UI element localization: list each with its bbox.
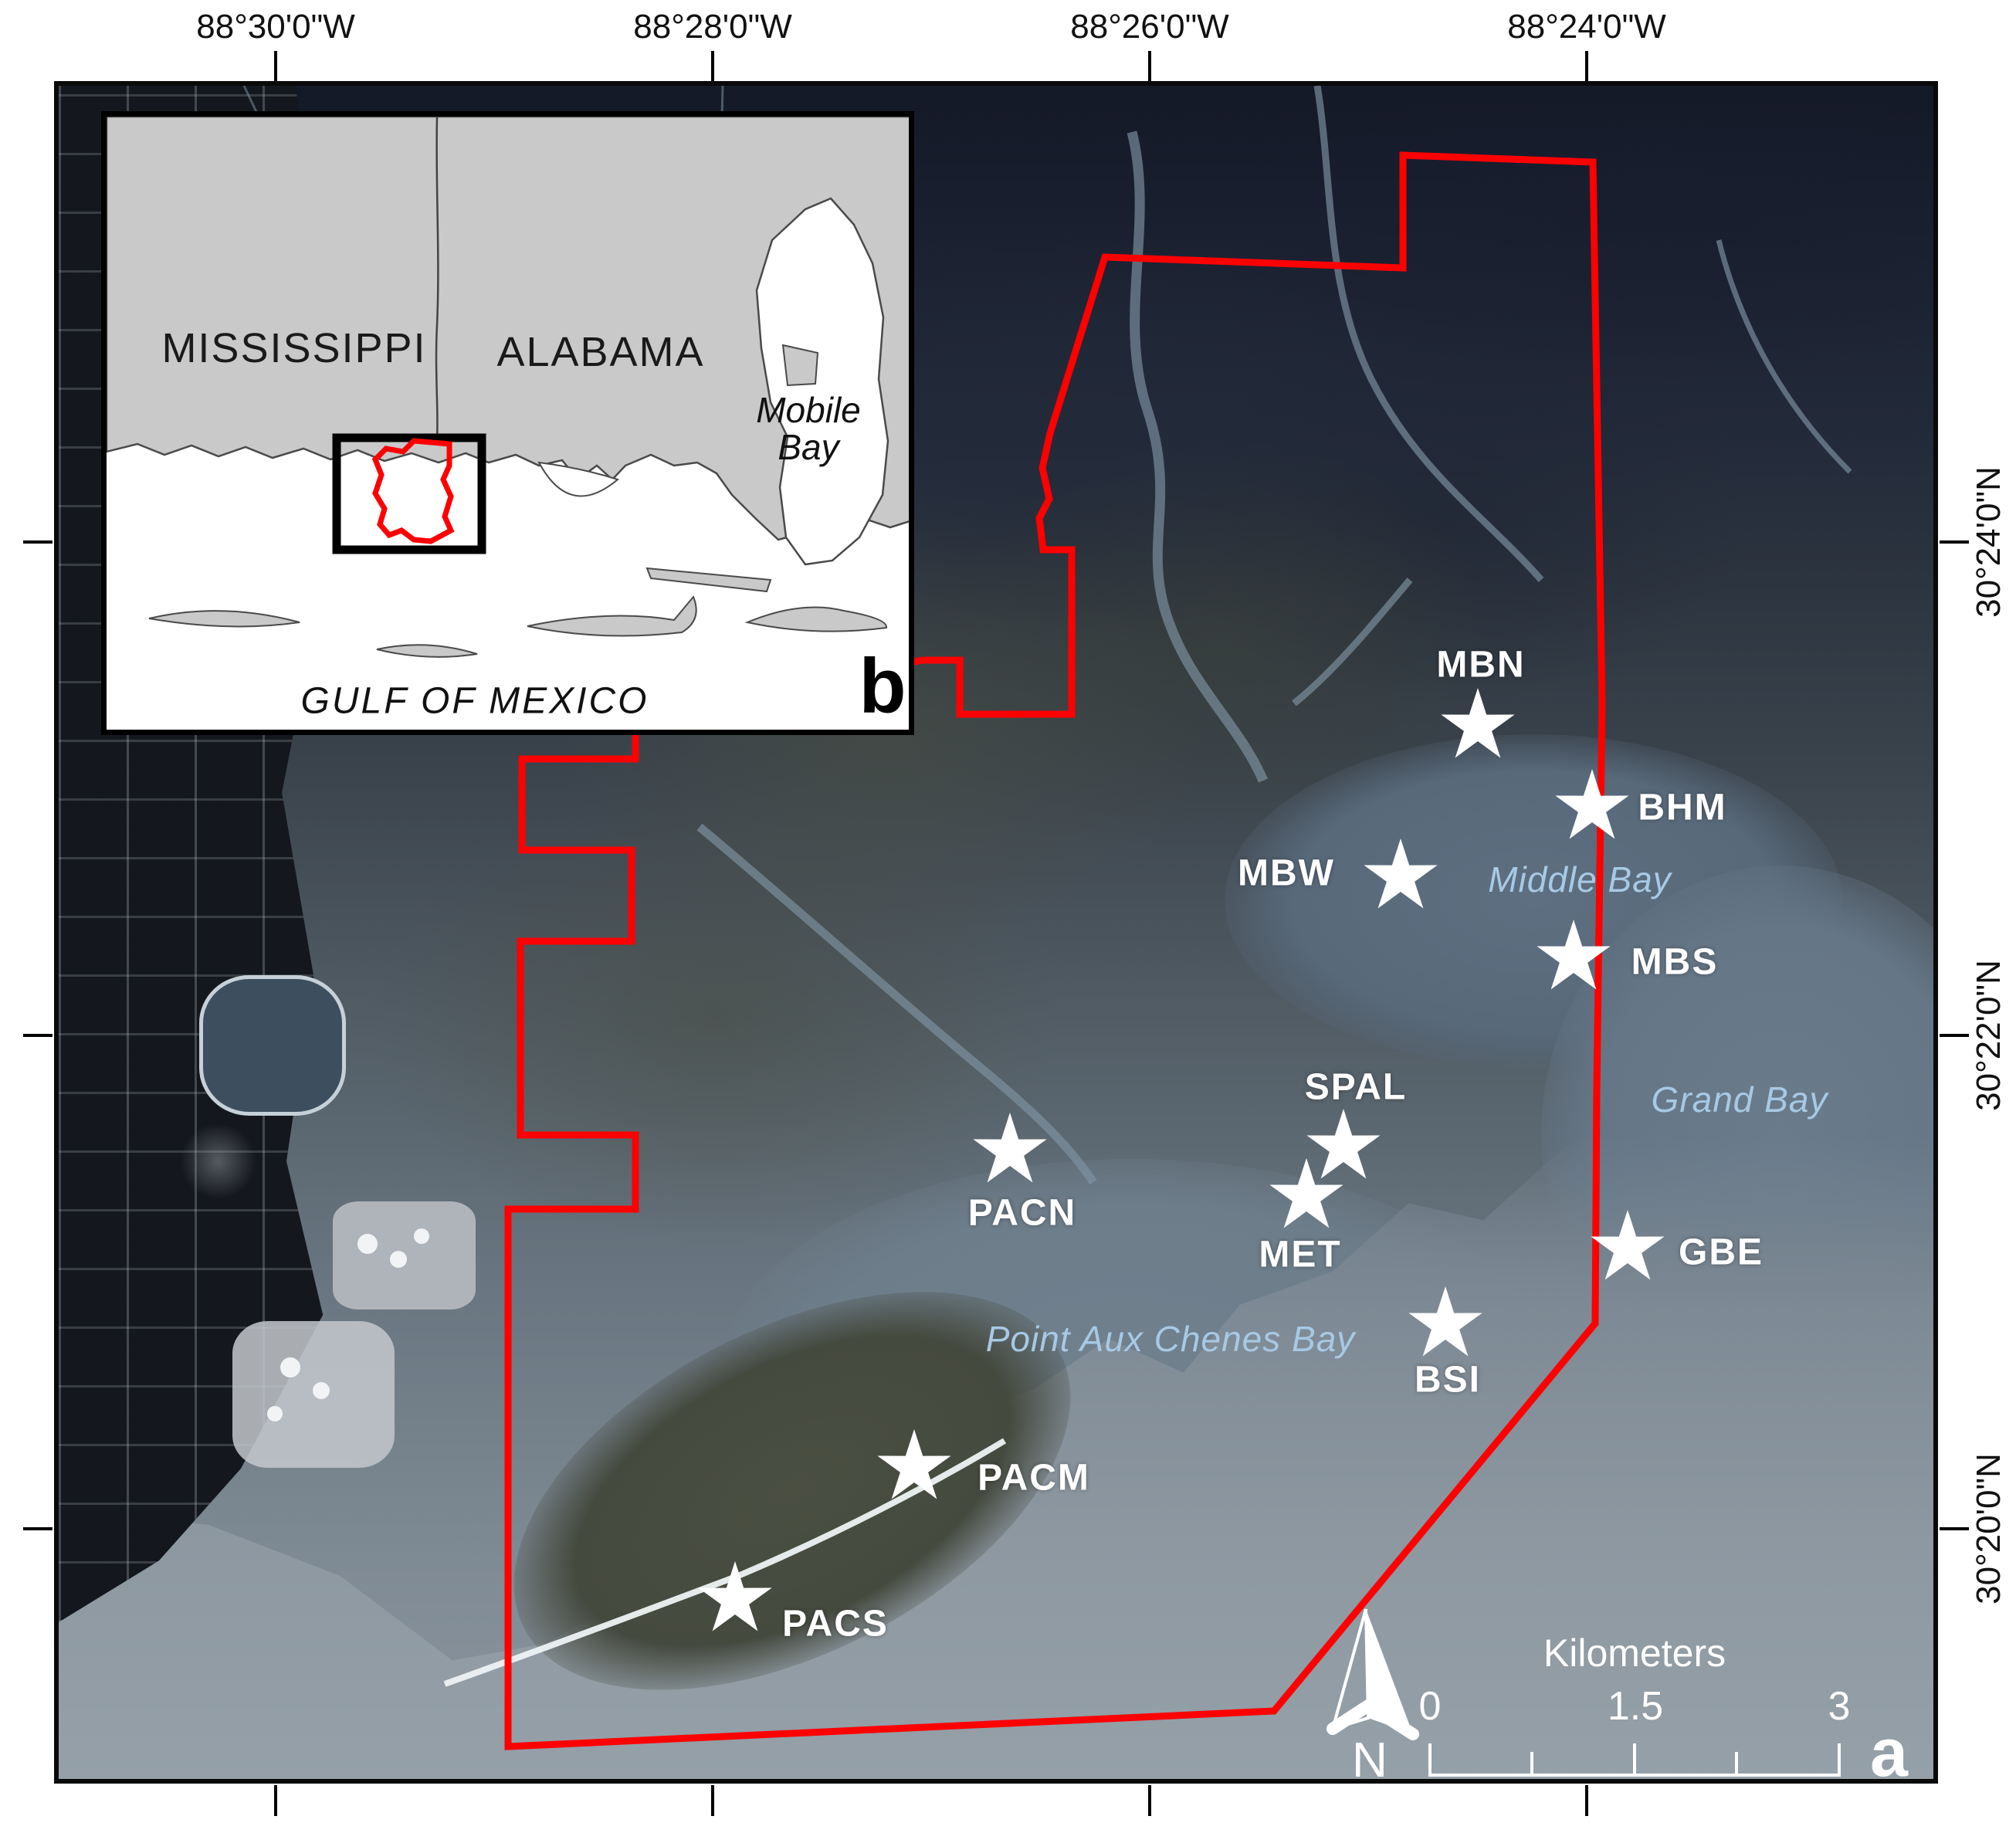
lat-tick-left-0 <box>23 540 53 544</box>
scale-bar-tick-1 <box>1530 1752 1533 1777</box>
lat-tick-right-2 <box>1940 1527 1969 1530</box>
station-star-bhm <box>1555 769 1628 839</box>
bay-label-0: Middle Bay <box>1488 859 1672 900</box>
scale-bar-tick-0 <box>1428 1743 1432 1777</box>
north-arrow-label: N <box>1352 1731 1387 1784</box>
panel-b-label: b <box>859 642 906 731</box>
scale-number-0: 0 <box>1419 1683 1442 1730</box>
station-label-bhm: BHM <box>1638 787 1726 829</box>
lon-label-2: 88°26'0"W <box>1070 8 1229 46</box>
label-gulf-of-mexico: GULF OF MEXICO <box>301 680 649 723</box>
scale-bar-title: Kilometers <box>1543 1631 1726 1675</box>
lat-tick-left-1 <box>23 1034 53 1037</box>
inset-locator-map-panel-b: MISSISSIPPI ALABAMA Mobile Bay GULF OF M… <box>101 111 914 735</box>
scale-number-1: 1.5 <box>1608 1683 1663 1730</box>
lat-label-2: 30°20'0"N <box>1970 1453 2008 1604</box>
station-label-mbn: MBN <box>1436 644 1525 686</box>
lat-tick-right-1 <box>1940 1034 1969 1037</box>
figure-canvas: { "panel": { "a": "a", "b": "b" }, "top_… <box>0 0 2016 1833</box>
lat-tick-left-2 <box>23 1527 53 1530</box>
station-label-spal: SPAL <box>1305 1066 1407 1109</box>
lon-tick-top-1 <box>711 51 714 81</box>
station-label-gbe: GBE <box>1679 1232 1764 1274</box>
lon-tick-bottom-3 <box>1585 1785 1588 1816</box>
lon-tick-bottom-2 <box>1148 1785 1151 1816</box>
station-star-pacs <box>698 1561 771 1631</box>
label-mobile-bay-line1: Mobile <box>756 389 861 431</box>
station-label-mbs: MBS <box>1631 941 1719 984</box>
label-mississippi: MISSISSIPPI <box>161 324 426 372</box>
bay-label-2: Point Aux Chenes Bay <box>986 1318 1356 1360</box>
panel-a-label: a <box>1870 1713 1908 1784</box>
station-star-pacn <box>973 1113 1046 1183</box>
station-label-bsi: BSI <box>1415 1359 1481 1401</box>
station-label-met: MET <box>1259 1234 1341 1276</box>
lon-label-3: 88°24'0"W <box>1507 8 1666 46</box>
lat-tick-right-0 <box>1940 540 1969 544</box>
station-label-pacm: PACM <box>978 1457 1090 1499</box>
lon-tick-top-3 <box>1585 51 1588 81</box>
barrier-islands <box>149 597 886 657</box>
lon-label-0: 88°30'0"W <box>196 8 355 46</box>
label-mobile-bay-line2: Bay <box>778 426 839 468</box>
storage-tanks <box>267 1228 429 1421</box>
station-stars <box>698 688 1664 1631</box>
station-star-bsi <box>1408 1286 1482 1357</box>
lon-tick-top-2 <box>1148 51 1151 81</box>
lat-label-0: 30°24'0"N <box>1970 466 2008 618</box>
lon-tick-top-0 <box>274 51 277 81</box>
station-label-pacs: PACS <box>782 1603 889 1645</box>
bay-island <box>783 345 818 385</box>
station-star-mbn <box>1441 688 1514 758</box>
label-alabama: ALABAMA <box>496 328 704 376</box>
scale-bar-tick-2 <box>1633 1743 1636 1777</box>
station-label-pacn: PACN <box>968 1192 1076 1235</box>
lon-label-1: 88°28'0"W <box>633 8 792 46</box>
scale-bar-tick-4 <box>1838 1743 1841 1777</box>
lon-tick-bottom-0 <box>274 1785 277 1816</box>
station-star-mbw <box>1364 839 1437 909</box>
lon-tick-bottom-1 <box>711 1785 714 1816</box>
bay-label-1: Grand Bay <box>1652 1079 1828 1120</box>
lat-label-1: 30°22'0"N <box>1970 960 2008 1111</box>
scale-number-2: 3 <box>1828 1683 1851 1730</box>
station-star-spal <box>1306 1109 1380 1179</box>
station-label-mbw: MBW <box>1238 852 1335 895</box>
scale-bar-tick-3 <box>1735 1752 1738 1777</box>
dauphin-island <box>647 568 771 591</box>
station-star-gbe <box>1591 1210 1664 1280</box>
